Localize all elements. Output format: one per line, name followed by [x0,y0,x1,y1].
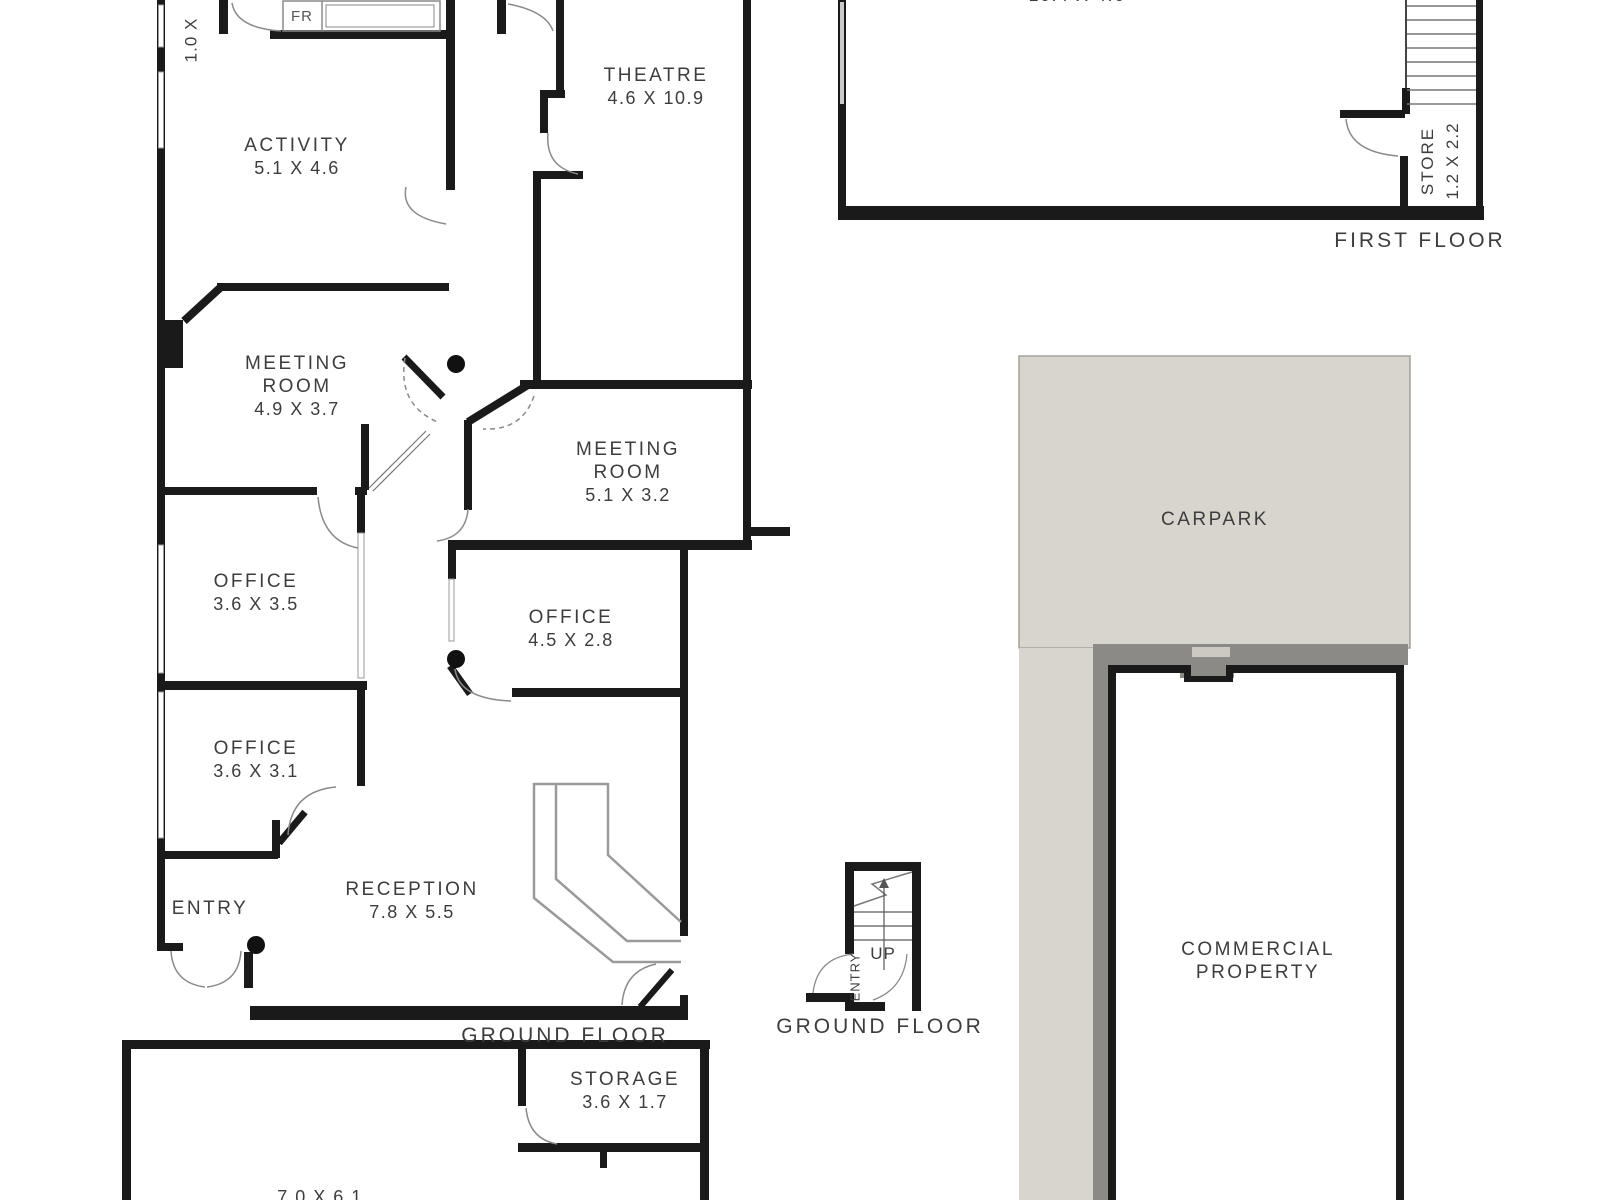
stair-entry-label: ENTRY [848,953,863,1002]
ground-floor-caption: GROUND FLOOR [461,1024,669,1048]
room-label-small-room-partial: 1.0 X [179,18,204,63]
room-dims: 1.2 X 2.2 [1440,122,1465,199]
room-name: MEETING [576,438,680,461]
room-dims: 5.1 X 3.2 [585,484,671,507]
area-name: PROPERTY [1196,961,1320,984]
room-name: ACTIVITY [244,134,350,157]
reception-desk [534,783,681,962]
stair-up-label: UP [870,944,896,964]
room-dims: 7.0 X 6.1 [277,1186,363,1200]
room-name: ROOM [593,461,662,484]
room-label-meeting-room-2: MEETING ROOM 5.1 X 3.2 [576,438,680,507]
room-name: STORE [1415,122,1440,199]
floorplan-page: ACTIVITY 5.1 X 4.6 THEATRE 4.6 X 10.9 ME… [0,0,1600,1200]
room-name: OFFICE [214,570,299,593]
room-name: MEETING [245,352,349,375]
commercial-property-walls [1108,665,1404,1200]
room-name: OFFICE [529,606,614,629]
room-dims: 1.0 X [179,18,204,63]
room-label-activity: ACTIVITY 5.1 X 4.6 [244,134,350,180]
room-name: STORAGE [570,1068,680,1091]
door-pivot-dots [247,355,465,954]
commercial-property-label: COMMERCIAL PROPERTY [1181,938,1335,984]
room-label-office-3: OFFICE 3.6 X 3.1 [213,737,299,783]
room-label-office-1: OFFICE 3.6 X 3.5 [213,570,299,616]
room-dims: 7.8 X 5.5 [369,901,455,924]
room-name: OFFICE [214,737,299,760]
lower-building-walls [122,1040,710,1200]
room-label-store: STORE 1.2 X 2.2 [1415,122,1465,199]
room-name: ENTRY [172,897,249,920]
room-dims: 5.1 X 4.6 [254,157,340,180]
room-dims: 4.5 X 2.8 [528,629,614,652]
carpark-label: CARPARK [1161,508,1269,531]
room-dims: 10.4 X 4.6 [1028,0,1125,7]
room-label-theatre: THEATRE 4.6 X 10.9 [604,64,709,110]
storage-door-arc [526,1108,557,1144]
room-name: RECEPTION [345,878,478,901]
site-carpark-block [1019,356,1410,1200]
room-dims: 3.6 X 1.7 [582,1091,668,1114]
stairwell-module [806,862,921,1011]
room-name: ROOM [262,375,331,398]
lower-room-dims-partial: 7.0 X 6.1 [277,1186,363,1200]
room-name: THEATRE [604,64,709,87]
stairwell-ground-floor-caption: GROUND FLOOR [776,1015,984,1039]
meeting1-door-leaf [369,431,430,491]
room-label-reception: RECEPTION 7.8 X 5.5 [345,878,478,924]
first-floor-room-dims-partial: 10.4 X 4.6 [1028,0,1125,7]
area-name: CARPARK [1161,508,1269,531]
room-label-meeting-room-1: MEETING ROOM 4.9 X 3.7 [245,352,349,421]
room-dims: 3.6 X 3.1 [213,760,299,783]
fridge-label: FR [291,8,313,25]
first-floor-caption: FIRST FLOOR [1334,229,1505,253]
room-dims: 4.6 X 10.9 [607,87,704,110]
area-name: COMMERCIAL [1181,938,1335,961]
room-label-storage: STORAGE 3.6 X 1.7 [570,1068,680,1114]
room-label-entry: ENTRY [172,897,249,920]
room-label-office-2: OFFICE 4.5 X 2.8 [528,606,614,652]
first-floor-stairs [1407,6,1476,104]
store-door-arc [1346,119,1398,156]
room-dims: 4.9 X 3.7 [254,398,340,421]
first-floor-walls [838,0,1484,220]
room-dims: 3.6 X 3.5 [213,593,299,616]
